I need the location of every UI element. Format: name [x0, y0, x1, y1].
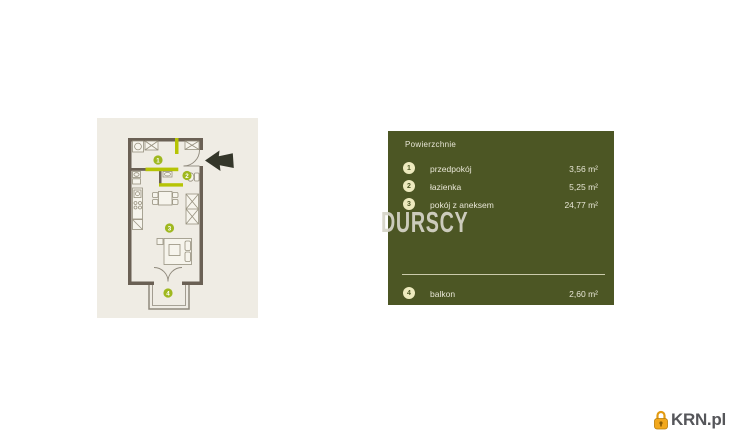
row-number-badge: 4 [403, 287, 415, 299]
fixture [133, 179, 141, 184]
kitchen-sink [134, 190, 141, 198]
room-label: balkon [430, 289, 455, 299]
balcony-door-arc [154, 268, 168, 282]
room-marker-number: 3 [168, 225, 172, 232]
room-area-value: 2,60 m² [569, 289, 598, 299]
floor-plan-drawing: 1 2 3 4 [97, 118, 258, 318]
room-label: przedpokój [430, 164, 472, 174]
padlock-icon [653, 410, 669, 430]
row-number-badge: 2 [403, 180, 415, 192]
blanket [169, 245, 180, 256]
logo-text: KRN.pl [671, 410, 726, 430]
area-row: 2 łazienka 5,25 m² [388, 179, 614, 193]
chair [153, 200, 159, 205]
floor-plan: 1 2 3 4 [97, 118, 258, 318]
toilet-tank [195, 173, 200, 181]
separator-line [402, 274, 605, 275]
chair [173, 200, 179, 205]
room-area-value: 3,56 m² [569, 164, 598, 174]
watermark: DURSCY [381, 207, 468, 240]
pillow [185, 241, 191, 251]
dining-table [159, 192, 173, 206]
balcony-door-arc [168, 268, 182, 282]
entrance-door-arc [184, 150, 200, 166]
row-number-badge: 1 [403, 162, 415, 174]
panel-title: Powierzchnie [405, 140, 456, 149]
room-label: łazienka [430, 182, 461, 192]
chair [173, 193, 179, 198]
chair [153, 193, 159, 198]
nightstand [157, 239, 163, 245]
area-row: 1 przedpokój 3,56 m² [388, 161, 614, 175]
room-marker-number: 1 [156, 157, 160, 164]
entrance-arrow-icon [205, 151, 234, 172]
area-row-balcony: 4 balkon 2,60 m² [388, 286, 614, 300]
listing-image: 1 2 3 4 Powierzchnie 1 przedpokój 3,56 m… [0, 0, 740, 443]
room-marker-number: 2 [185, 173, 189, 180]
washer [133, 141, 144, 152]
furniture [133, 141, 200, 265]
room-marker-number: 4 [166, 290, 170, 297]
pillow [185, 252, 191, 262]
krn-logo: KRN.pl [653, 410, 726, 430]
room-area-value: 24,77 m² [564, 200, 598, 210]
room-area-value: 5,25 m² [569, 182, 598, 192]
